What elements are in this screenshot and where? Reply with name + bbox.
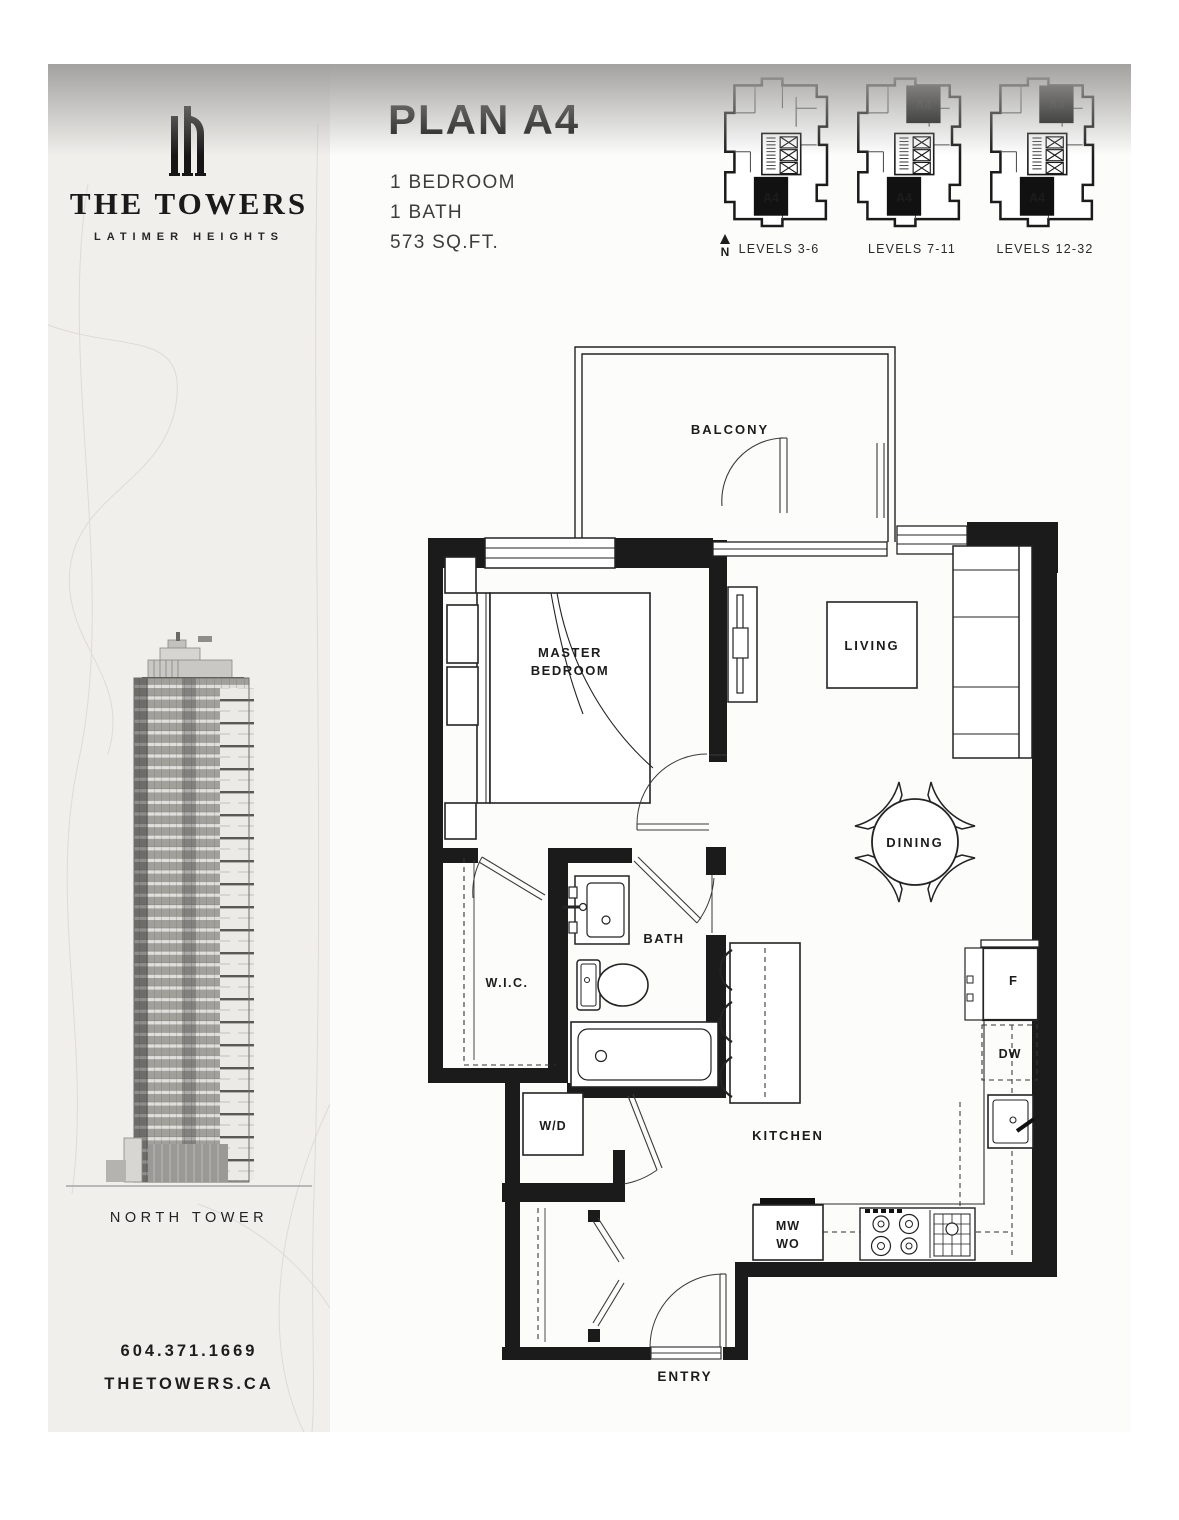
kitchen-island — [720, 943, 800, 1103]
keyplan-levels-12-32: A4 A4 LEVELS 12-32 — [982, 74, 1108, 256]
toilet — [577, 960, 648, 1010]
bath-door — [634, 857, 714, 933]
wd-door — [624, 1094, 662, 1184]
sidebar: THE TOWERS LATIMER HEIGHTS — [48, 64, 330, 1432]
tv-console — [728, 587, 757, 702]
balcony-door — [722, 438, 884, 518]
spec-bedroom: 1 BEDROOM — [390, 168, 516, 198]
bedroom-furniture — [445, 557, 478, 839]
keyplan-label: LEVELS 3-6 — [716, 242, 842, 256]
dining-label: DINING — [886, 835, 944, 850]
north-arrow-icon — [720, 234, 730, 244]
living-label: LIVING — [844, 638, 899, 653]
vanity-sink — [562, 876, 629, 944]
north-indicator: N — [716, 234, 734, 259]
fridge-label: F — [1009, 973, 1017, 988]
page-title: PLAN A4 — [388, 96, 580, 144]
bathtub — [571, 1022, 718, 1087]
keyplan-label: LEVELS 12-32 — [982, 242, 1108, 256]
brochure-page: THE TOWERS LATIMER HEIGHTS — [48, 64, 1131, 1432]
wd-label: W/D — [539, 1119, 566, 1133]
a4-unit-label: A4 — [915, 98, 931, 112]
a4-unit-label: A4 — [1029, 191, 1045, 205]
keyplan-levels-7-11: A4 A4 LEVELS 7-11 — [849, 74, 975, 256]
wic-label: W.I.C. — [485, 976, 528, 990]
microwave-label: MW — [776, 1219, 800, 1233]
fridge — [965, 940, 1039, 1020]
spec-area: 573 SQ.FT. — [390, 228, 516, 258]
sofa — [953, 546, 1032, 758]
keyplan-figure-1: A4 — [716, 74, 842, 234]
spec-bath: 1 BATH — [390, 198, 516, 228]
floorplan: BALCONY — [425, 330, 1075, 1400]
cooktop — [860, 1208, 975, 1260]
a4-unit-label: A4 — [1048, 98, 1064, 112]
contact-block: 604.371.1669 THETOWERS.CA — [48, 1342, 330, 1394]
a4-unit-label: A4 — [763, 191, 779, 205]
entry-closet — [538, 1208, 624, 1342]
dishwasher-label: DW — [999, 1047, 1022, 1061]
phone-number: 604.371.1669 — [48, 1342, 330, 1361]
a4-unit-label: A4 — [896, 191, 912, 205]
entry-door — [650, 1274, 726, 1359]
balcony-slider-window — [713, 542, 887, 556]
entry-label: ENTRY — [657, 1369, 712, 1384]
master-bedroom-label-1: MASTER — [538, 645, 602, 660]
north-label: N — [716, 245, 734, 259]
brand-subtitle: LATIMER HEIGHTS — [48, 231, 330, 243]
balcony — [575, 347, 895, 542]
keyplan-levels-3-6: A4 LEVELS 3-6 — [716, 74, 842, 256]
keyplan-label: LEVELS 7-11 — [849, 242, 975, 256]
north-tower-illustration — [64, 630, 314, 1205]
wall-oven-label: WO — [776, 1237, 800, 1251]
bath-label: BATH — [643, 931, 684, 946]
brand-name: THE TOWERS — [48, 186, 330, 222]
balcony-label: BALCONY — [691, 422, 769, 437]
wic-closet — [464, 858, 556, 1065]
kitchen-sink — [988, 1095, 1034, 1148]
bedroom-window — [485, 538, 615, 568]
website-url: THETOWERS.CA — [48, 1375, 330, 1394]
keyplan-row: A4 LEVELS 3-6 A4 A4 LEVELS 7-11 A4 A4 LE… — [716, 74, 1108, 256]
towers-monogram-icon — [167, 102, 211, 186]
tower-caption: NORTH TOWER — [48, 1210, 330, 1226]
master-bedroom-label-2: BEDROOM — [531, 663, 609, 678]
keyplan-figure-3: A4 A4 — [982, 74, 1108, 234]
kitchen-label: KITCHEN — [752, 1128, 824, 1143]
plan-specs: 1 BEDROOM 1 BATH 573 SQ.FT. — [390, 168, 516, 258]
keyplan-figure-2: A4 A4 — [849, 74, 975, 234]
bed — [477, 593, 653, 803]
wic-door — [473, 857, 545, 900]
